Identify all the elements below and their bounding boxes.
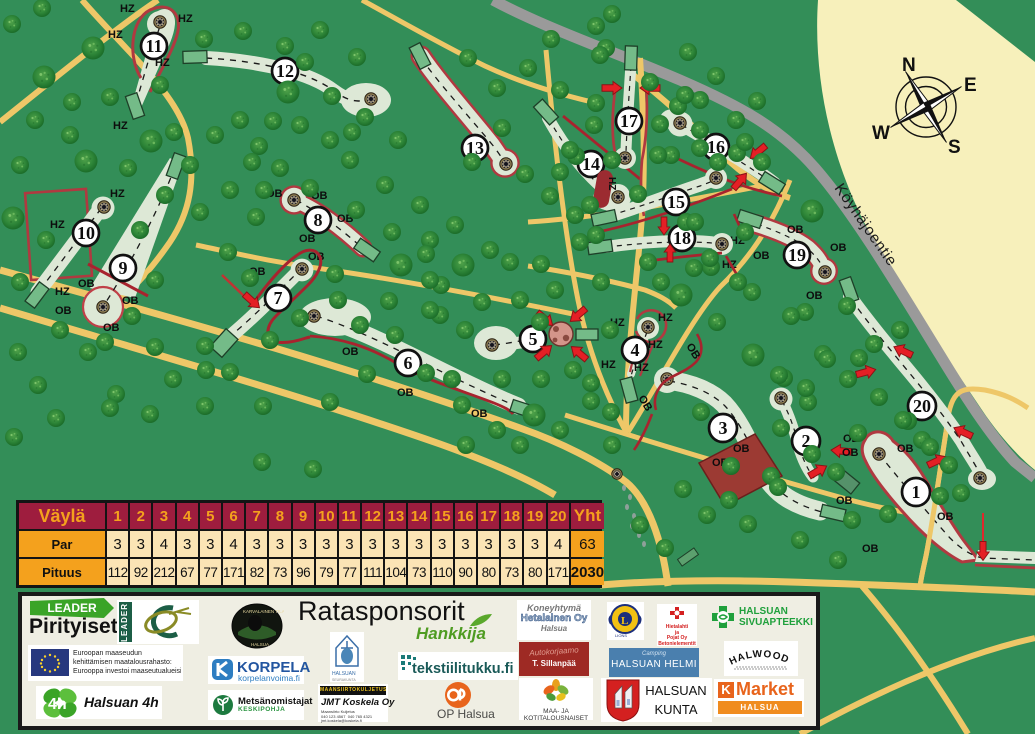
svg-text:OB: OB <box>733 443 750 455</box>
svg-text:OB: OB <box>55 305 72 317</box>
svg-text:1: 1 <box>912 482 921 502</box>
svg-text:OB: OB <box>787 224 804 236</box>
svg-text:HALSUAN: HALSUAN <box>332 671 356 677</box>
svg-text:18: 18 <box>673 228 691 248</box>
svg-text:OB: OB <box>897 443 914 455</box>
svg-text:OB: OB <box>753 250 770 262</box>
svg-text:4: 4 <box>631 340 640 360</box>
svg-text:3: 3 <box>719 418 728 438</box>
svg-text:OB: OB <box>122 295 139 307</box>
svg-text:KARVALAINEN TILA: KARVALAINEN TILA <box>243 609 284 614</box>
svg-text:OB: OB <box>806 290 823 302</box>
svg-text:19: 19 <box>788 245 806 265</box>
svg-text:HALSUA: HALSUA <box>251 642 269 647</box>
svg-text:OB: OB <box>397 387 414 399</box>
svg-text:OB: OB <box>937 511 954 523</box>
svg-text:HZ: HZ <box>155 57 170 69</box>
svg-text:HZ: HZ <box>648 339 663 351</box>
svg-text:9: 9 <box>119 258 128 278</box>
svg-text:SEURAKUNTA: SEURAKUNTA <box>332 678 356 682</box>
svg-text:HZ: HZ <box>55 286 70 298</box>
svg-text:HZ: HZ <box>108 29 123 41</box>
svg-text:OB: OB <box>830 242 847 254</box>
svg-text:OB: OB <box>836 495 853 507</box>
svg-text:OB: OB <box>103 322 120 334</box>
svg-text:OB: OB <box>78 278 95 290</box>
svg-text:HZ: HZ <box>606 177 617 190</box>
svg-text:OB: OB <box>471 408 488 420</box>
svg-text:HZ: HZ <box>113 120 128 132</box>
svg-text:HZ: HZ <box>50 219 65 231</box>
svg-text:7: 7 <box>274 288 283 308</box>
svg-text:6: 6 <box>404 353 413 373</box>
svg-text:20: 20 <box>913 396 931 416</box>
svg-text:OB: OB <box>862 543 879 555</box>
svg-text:12: 12 <box>276 61 294 81</box>
svg-text:OB: OB <box>842 447 859 459</box>
svg-text:HZ: HZ <box>178 13 193 25</box>
svg-text:HZ: HZ <box>601 359 616 371</box>
svg-text:10: 10 <box>77 223 95 243</box>
svg-text:5: 5 <box>529 329 538 349</box>
svg-text:OB: OB <box>299 233 316 245</box>
svg-text:N: N <box>902 55 916 76</box>
svg-text:LIONS: LIONS <box>615 633 627 638</box>
svg-text:HZ: HZ <box>120 3 135 15</box>
svg-text:HZ: HZ <box>110 188 125 200</box>
svg-text:E: E <box>964 75 977 96</box>
svg-text:L: L <box>621 615 628 627</box>
svg-text:S: S <box>948 137 961 158</box>
svg-text:4h: 4h <box>48 696 67 713</box>
svg-text:15: 15 <box>667 192 685 212</box>
svg-text:W: W <box>872 123 890 144</box>
svg-text:OB: OB <box>342 346 359 358</box>
svg-text:8: 8 <box>314 210 323 230</box>
svg-text:HZ: HZ <box>658 312 673 324</box>
svg-text:HALWOOD: HALWOOD <box>728 649 791 668</box>
svg-text:HZ: HZ <box>634 362 649 374</box>
svg-text:11: 11 <box>145 36 162 56</box>
svg-text:17: 17 <box>620 111 638 131</box>
